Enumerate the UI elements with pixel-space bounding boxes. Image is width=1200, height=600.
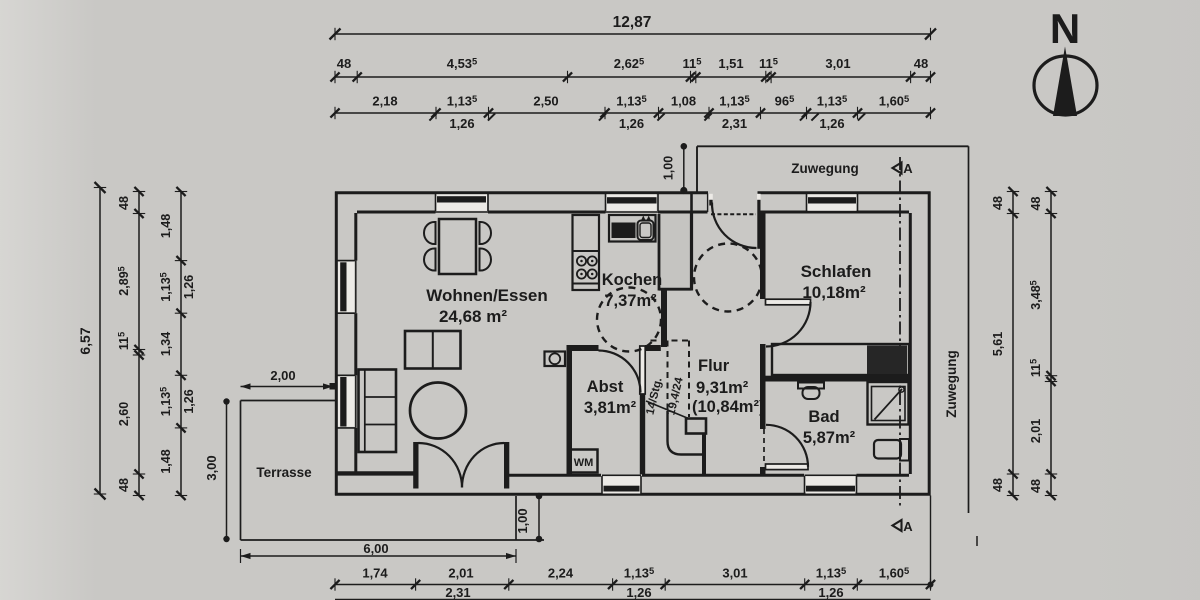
svg-text:48: 48	[1029, 479, 1043, 493]
svg-text:Terrasse: Terrasse	[256, 465, 312, 480]
svg-text:2,31: 2,31	[445, 585, 470, 600]
svg-text:2,31: 2,31	[722, 116, 747, 131]
svg-text:(10,84m²): (10,84m²)	[692, 398, 764, 416]
svg-text:1,26: 1,26	[619, 116, 644, 131]
svg-text:24,68 m²: 24,68 m²	[439, 307, 507, 326]
svg-text:Zuwegung: Zuwegung	[944, 350, 959, 418]
svg-text:48: 48	[117, 478, 131, 492]
svg-text:WM: WM	[574, 457, 594, 469]
svg-text:2,01: 2,01	[448, 566, 473, 581]
svg-text:7,37m²: 7,37m²	[604, 292, 657, 310]
svg-text:Flur: Flur	[698, 357, 730, 375]
svg-text:1,26: 1,26	[626, 585, 651, 600]
svg-text:1,48: 1,48	[159, 214, 173, 238]
svg-text:6,57: 6,57	[77, 327, 93, 354]
svg-text:48: 48	[991, 196, 1005, 210]
svg-text:1,74: 1,74	[362, 566, 388, 581]
svg-text:1,26: 1,26	[182, 389, 196, 413]
svg-text:48: 48	[914, 56, 928, 71]
svg-text:2,01: 2,01	[1029, 419, 1043, 443]
svg-text:2,50: 2,50	[533, 94, 558, 109]
svg-text:48: 48	[117, 196, 131, 210]
svg-text:1,08: 1,08	[671, 94, 696, 109]
svg-text:3,01: 3,01	[722, 566, 747, 581]
svg-text:A: A	[903, 519, 913, 534]
svg-text:48: 48	[1029, 197, 1043, 211]
svg-text:1,26: 1,26	[449, 116, 474, 131]
svg-text:N: N	[1050, 5, 1080, 52]
svg-text:9,31m²: 9,31m²	[696, 379, 749, 397]
svg-text:Abst: Abst	[587, 378, 624, 396]
svg-text:48: 48	[991, 478, 1005, 492]
svg-text:3,00: 3,00	[204, 455, 219, 480]
svg-text:1,26: 1,26	[818, 585, 843, 600]
svg-text:1,26: 1,26	[182, 275, 196, 299]
svg-text:Kochen: Kochen	[602, 271, 663, 289]
svg-text:10,18m²: 10,18m²	[802, 283, 866, 302]
svg-text:Wohnen/Essen: Wohnen/Essen	[426, 286, 548, 305]
svg-text:1,34: 1,34	[159, 332, 173, 356]
svg-text:1,51: 1,51	[718, 56, 743, 71]
svg-text:2,24: 2,24	[548, 566, 574, 581]
svg-text:Zuwegung: Zuwegung	[791, 161, 859, 176]
svg-text:Bad: Bad	[808, 408, 839, 426]
svg-text:2,18: 2,18	[372, 94, 397, 109]
svg-text:Schlafen: Schlafen	[801, 262, 872, 281]
svg-text:6,00: 6,00	[363, 541, 388, 556]
svg-text:A: A	[903, 161, 913, 176]
svg-text:2,60: 2,60	[117, 402, 131, 426]
svg-text:12,87: 12,87	[613, 14, 652, 31]
svg-text:1,26: 1,26	[819, 116, 844, 131]
svg-text:1,00: 1,00	[515, 508, 530, 533]
svg-text:1,00: 1,00	[662, 156, 676, 180]
svg-text:5,87m²: 5,87m²	[803, 429, 856, 447]
svg-text:48: 48	[337, 56, 351, 71]
svg-text:2,00: 2,00	[270, 368, 295, 383]
svg-text:5,61: 5,61	[991, 332, 1005, 356]
svg-text:3,81m²: 3,81m²	[584, 399, 637, 417]
svg-text:1,48: 1,48	[159, 449, 173, 473]
svg-text:3,01: 3,01	[825, 56, 850, 71]
